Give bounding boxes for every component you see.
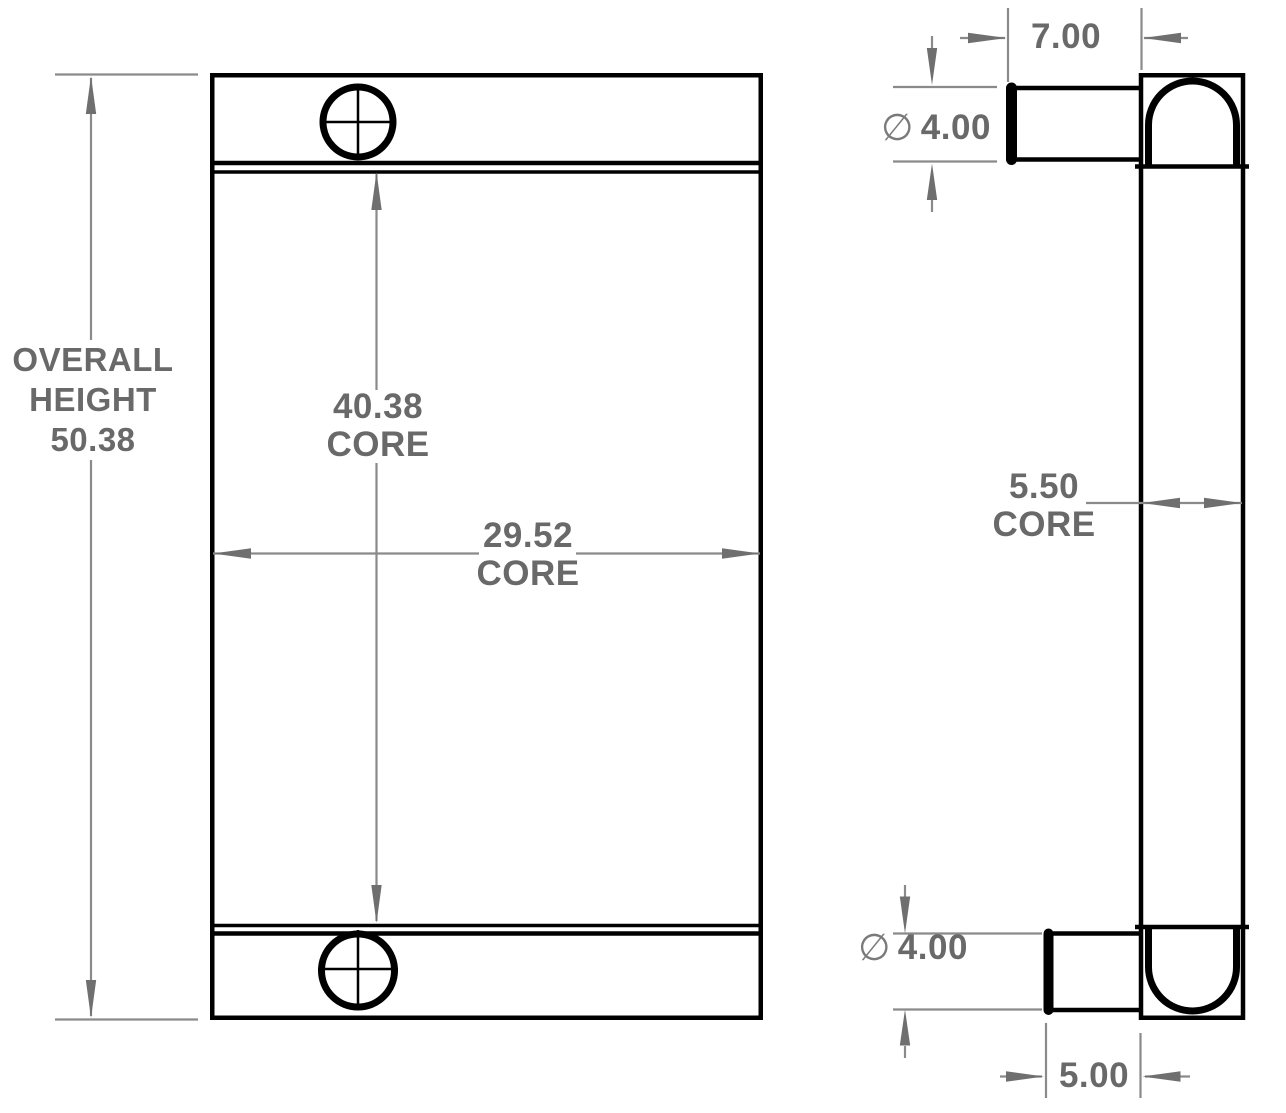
core-height-dimension bbox=[371, 172, 381, 923]
arrowhead-down bbox=[86, 980, 96, 1018]
bottom-port-diameter-label: ∅ 4.00 bbox=[858, 929, 968, 967]
bottom-port-diameter-value: 4.00 bbox=[898, 929, 968, 967]
core-depth-value: 5.50 bbox=[992, 468, 1095, 506]
arrowhead-left bbox=[1142, 498, 1180, 508]
arrowhead-right bbox=[1006, 1071, 1044, 1081]
core-height-label: 40.38 CORE bbox=[326, 388, 429, 464]
core-width-suffix: CORE bbox=[476, 555, 579, 593]
core-width-label: 29.52 CORE bbox=[476, 517, 579, 593]
arrowhead-down bbox=[371, 885, 381, 923]
drawing-sheet: OVERALL HEIGHT 50.38 40.38 CORE 29.52 CO… bbox=[0, 0, 1286, 1113]
core-depth-label: 5.50 CORE bbox=[992, 468, 1095, 544]
bottom-port-dome bbox=[1149, 927, 1237, 1011]
core-height-suffix: CORE bbox=[326, 426, 429, 464]
overall-depth-label: 7.00 bbox=[1031, 18, 1101, 56]
arrowhead-left bbox=[1143, 1071, 1181, 1081]
arrowhead-up bbox=[900, 1010, 910, 1046]
arrowhead-left bbox=[213, 548, 251, 558]
arrowhead-left bbox=[1143, 33, 1181, 43]
top-port-diameter-label: ∅ 4.00 bbox=[881, 109, 991, 147]
core-height-value: 40.38 bbox=[326, 388, 429, 426]
diameter-symbol: ∅ bbox=[858, 929, 891, 967]
port-protrusion-label: 5.00 bbox=[1059, 1057, 1129, 1095]
drawing-canvas bbox=[0, 0, 1286, 1113]
core-depth-dimension bbox=[1086, 498, 1242, 508]
overall-height-dimension bbox=[55, 75, 198, 1020]
side-view-outline bbox=[1141, 75, 1243, 1018]
overall-height-word-1: OVERALL bbox=[12, 340, 173, 380]
overall-depth-value: 7.00 bbox=[1031, 18, 1101, 56]
arrowhead-right bbox=[968, 33, 1007, 43]
side-view bbox=[1011, 75, 1249, 1018]
core-width-value: 29.52 bbox=[476, 517, 579, 555]
arrowhead-down bbox=[927, 48, 937, 85]
bottom-port-diameter-dimension bbox=[893, 885, 1042, 1058]
port-protrusion-value: 5.00 bbox=[1059, 1057, 1129, 1095]
overall-height-value: 50.38 bbox=[12, 420, 173, 460]
top-port-diameter-value: 4.00 bbox=[921, 109, 991, 147]
core-depth-suffix: CORE bbox=[992, 506, 1095, 544]
top-port-dome bbox=[1149, 81, 1237, 166]
overall-height-word-2: HEIGHT bbox=[12, 380, 173, 420]
diameter-symbol: ∅ bbox=[881, 109, 914, 147]
arrowhead-up bbox=[86, 76, 96, 114]
arrowhead-right bbox=[1204, 498, 1242, 508]
arrowhead-right bbox=[722, 548, 760, 558]
arrowhead-up bbox=[927, 164, 937, 201]
overall-height-label: OVERALL HEIGHT 50.38 bbox=[12, 340, 173, 460]
arrowhead-up bbox=[371, 172, 381, 210]
